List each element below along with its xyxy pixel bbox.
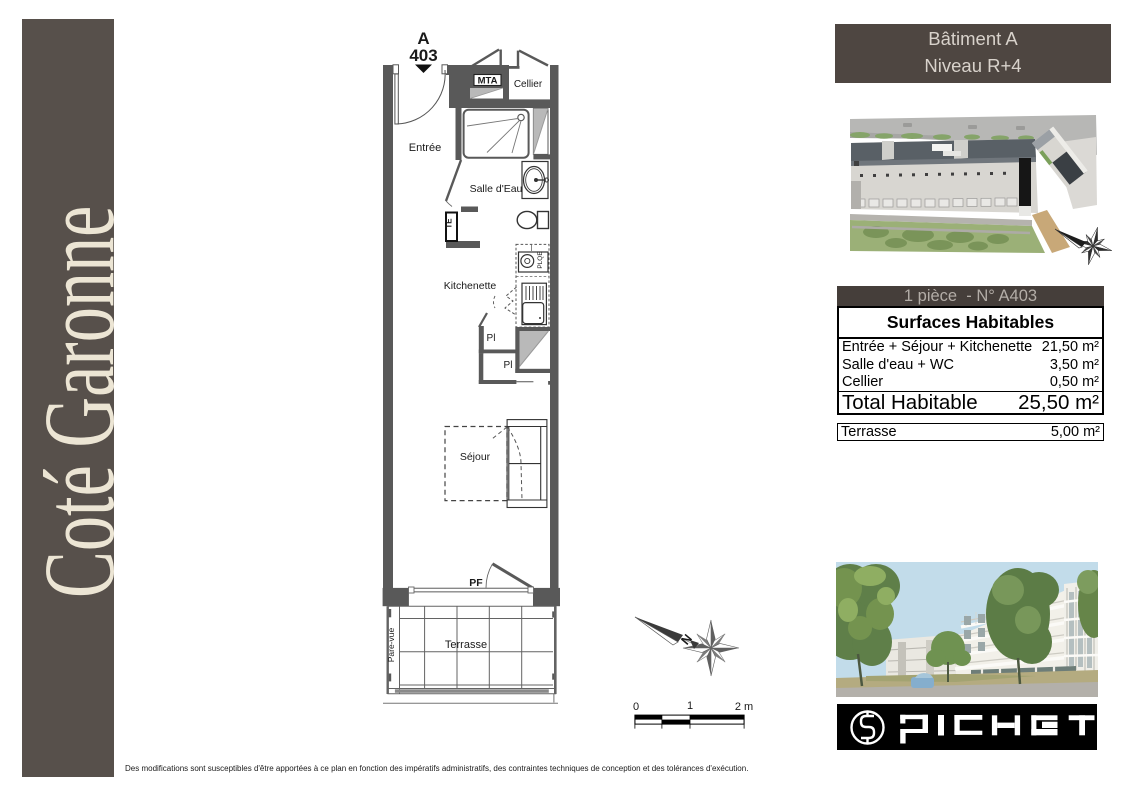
svg-text:Pl: Pl bbox=[487, 333, 496, 344]
svg-text:Kitchenette: Kitchenette bbox=[444, 280, 497, 292]
svg-text:0: 0 bbox=[633, 701, 639, 713]
svg-text:Pl: Pl bbox=[504, 360, 513, 371]
svg-text:Terrasse: Terrasse bbox=[445, 639, 487, 651]
svg-text:Séjour: Séjour bbox=[460, 451, 491, 463]
svg-text:Entrée: Entrée bbox=[409, 142, 441, 154]
svg-text:403: 403 bbox=[409, 46, 437, 65]
svg-text:Pare-vue: Pare-vue bbox=[386, 627, 396, 662]
svg-text:Salle d'Eau: Salle d'Eau bbox=[470, 183, 523, 195]
svg-text:2 m: 2 m bbox=[735, 701, 753, 713]
svg-text:1: 1 bbox=[687, 700, 693, 712]
svg-text:PF: PF bbox=[469, 577, 483, 589]
svg-text:PLQE: PLQE bbox=[537, 251, 544, 269]
svg-text:MTA: MTA bbox=[478, 76, 498, 87]
svg-text:Cellier: Cellier bbox=[514, 79, 543, 90]
svg-text:TE: TE bbox=[445, 218, 454, 229]
